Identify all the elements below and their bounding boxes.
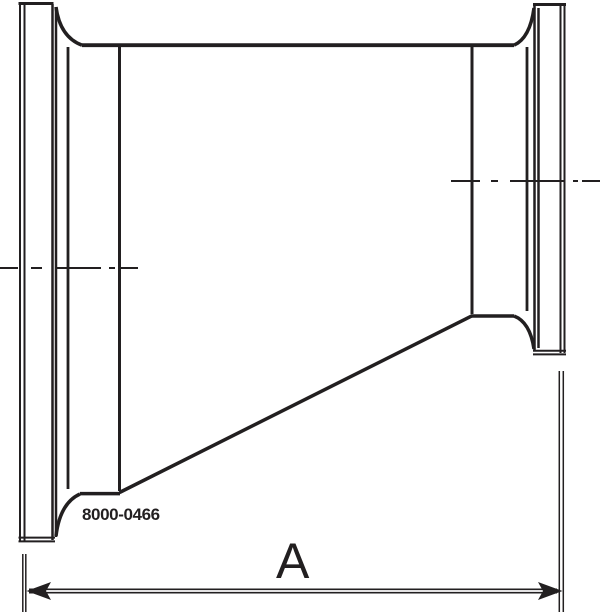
reducer-drawing: 8000-0466 A — [0, 0, 600, 613]
drawing-labels: 8000-0466 A — [82, 505, 310, 589]
part-number-label: 8000-0466 — [82, 505, 160, 524]
small-end-ferrule — [514, 4, 566, 354]
arrowhead-left — [27, 582, 52, 600]
large-end-ferrule — [19, 3, 120, 543]
reducer-body-outline — [80, 45, 514, 493]
technical-drawing-canvas: 8000-0466 A — [0, 0, 600, 613]
dimension-label-a: A — [276, 533, 310, 589]
